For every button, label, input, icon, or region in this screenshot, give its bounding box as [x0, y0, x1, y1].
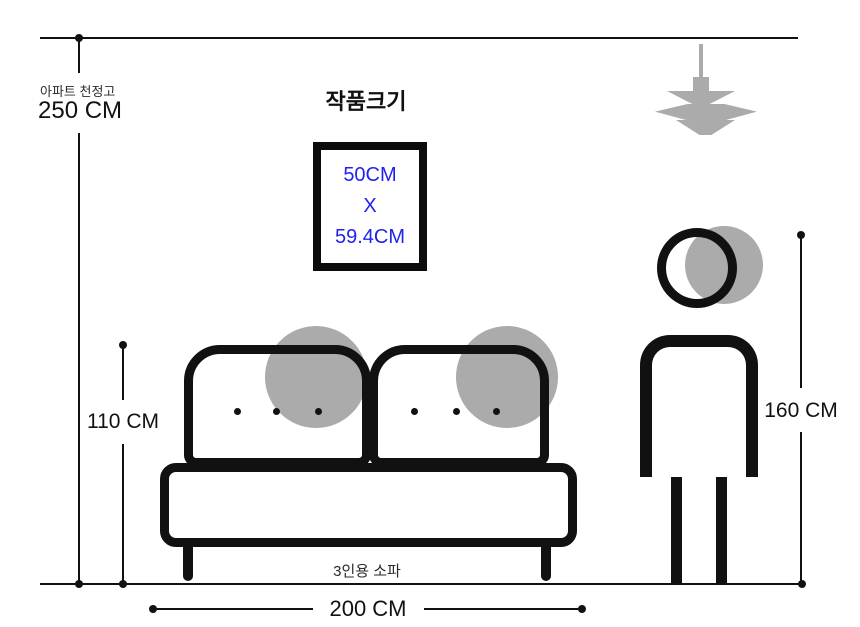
sofa-height-line-bottom: [122, 444, 124, 584]
sofa-width-line-left: [153, 608, 313, 610]
artwork-x-separator: X: [335, 191, 405, 222]
floor-end-dot: [798, 580, 806, 588]
sofa-cushion-right: [369, 345, 549, 467]
picture-frame: 50CM X 59.4CM: [313, 142, 427, 271]
ceiling-height-label: 250 CM: [38, 97, 122, 125]
person-height-label: 160 CM: [764, 399, 838, 423]
cushion-tuft-dot: [234, 408, 241, 415]
person-height-line-bottom: [800, 432, 802, 584]
lamp-shade-top: [667, 91, 735, 106]
artwork-width-label: 50CM: [335, 160, 405, 191]
artwork-height-label: 59.4CM: [335, 222, 405, 253]
cushion-tuft-dot: [453, 408, 460, 415]
cushion-tuft-dot: [273, 408, 280, 415]
cushion-tuft-dot: [315, 408, 322, 415]
sofa-cushion-left: [184, 345, 371, 467]
person-body: [640, 335, 758, 477]
person-leg-left: [671, 477, 682, 583]
floor-line: [40, 583, 802, 585]
lamp-shade-bottom: [676, 120, 735, 135]
lamp-socket: [693, 77, 709, 92]
lamp-shade-middle: [655, 104, 757, 121]
artwork-title: 작품크기: [326, 84, 407, 116]
size-guide-diagram: 아파트 천정고 250 CM 작품크기 50CM X 59.4CM 110 CM: [0, 0, 860, 627]
person-leg-right: [716, 477, 727, 583]
sofa-width-right-dot: [578, 605, 586, 613]
ceiling-measure-line-bottom: [78, 133, 80, 584]
sofa-width-line-right: [424, 608, 582, 610]
ceiling-measure-line-top: [78, 37, 80, 73]
cushion-tuft-dot: [411, 408, 418, 415]
ceiling-line: [40, 37, 798, 39]
sofa-base: [160, 463, 577, 547]
sofa-width-label: 200 CM: [329, 596, 406, 622]
sofa-height-line-top: [122, 345, 124, 400]
artwork-size-text: 50CM X 59.4CM: [335, 160, 405, 253]
sofa-leg-right: [541, 547, 551, 581]
person-head: [657, 228, 737, 308]
cushion-tuft-dot: [493, 408, 500, 415]
lamp-cord: [699, 44, 703, 78]
sofa-height-label: 110 CM: [87, 410, 159, 434]
person-height-line-top: [800, 235, 802, 388]
sofa-caption: 3인용 소파: [333, 560, 401, 581]
sofa-leg-left: [183, 547, 193, 581]
